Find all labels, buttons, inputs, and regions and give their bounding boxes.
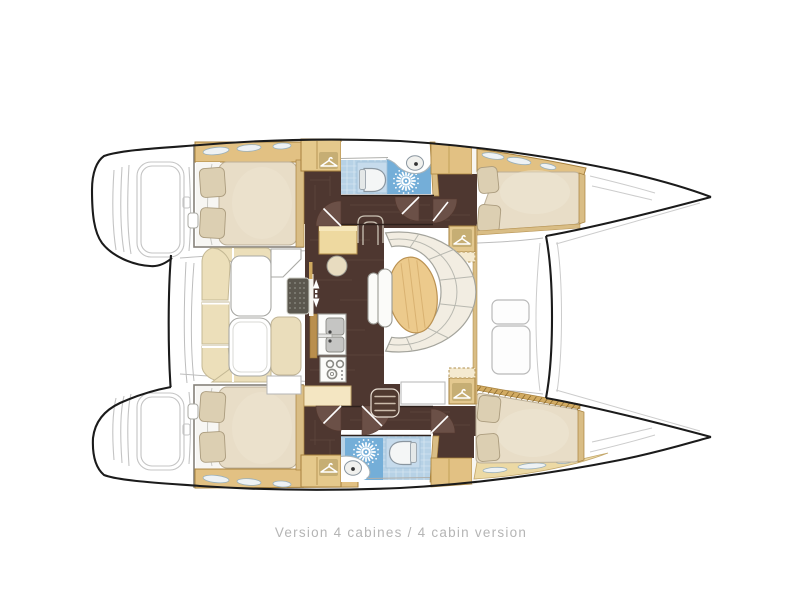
svg-text:Version 4 cabines / 4 cabin ve: Version 4 cabines / 4 cabin version	[275, 525, 527, 540]
